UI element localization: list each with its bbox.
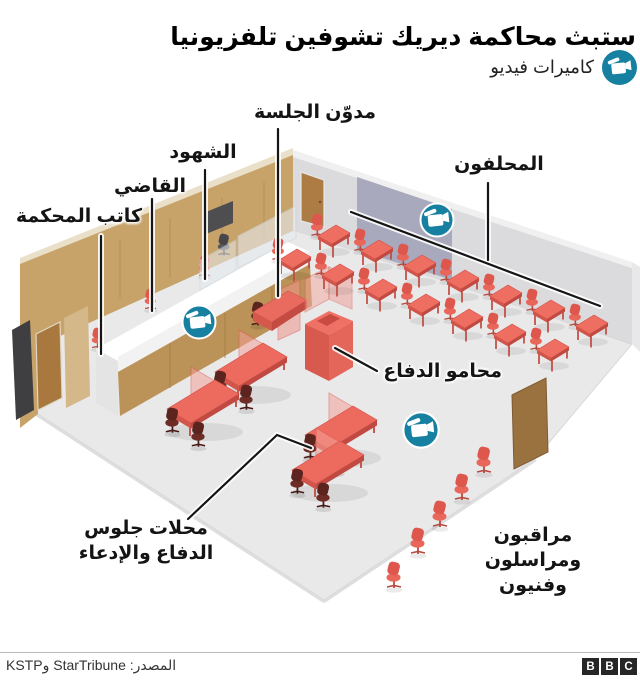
legend: كاميرات فيديو [490,50,637,85]
left-door [36,322,62,410]
bbc-logo-letter: B [582,658,599,675]
video-camera-icon [602,50,637,85]
label-jurors: المحلفون [450,152,548,177]
label-counsel-seating: محلات جلوس الدفاع والإدعاء [76,516,216,566]
video-camera-icon [403,412,438,447]
bbc-logo-letter: B [601,658,618,675]
label-court-reporter: مدوّن الجلسة [218,100,376,125]
label-counsel-seating-line2: الدفاع والإدعاء [76,541,216,566]
video-camera-icon [183,306,216,339]
label-judge: القاضي [118,174,186,199]
label-counsel-seating-line1: محلات جلوس [76,516,216,541]
defense-booth [305,267,353,381]
infographic: ستبث محاكمة ديريك تشوفين تلفزيونيا كامير… [0,0,640,681]
legend-label: كاميرات فيديو [490,57,594,78]
video-camera-icon [421,204,454,237]
label-observers-line2: ومراسلون وفنيون [452,548,614,598]
label-observers-line1: مراقبون [452,523,614,548]
label-court-clerk: كاتب المحكمة [12,204,142,229]
bbc-logo: B B C [582,658,637,675]
bbc-logo-letter: C [620,658,637,675]
page-title: ستبث محاكمة ديريك تشوفين تلفزيونيا [170,22,636,52]
source-text: المصدر: StarTribune وKSTP [6,657,176,674]
label-witnesses: الشهود [164,140,242,165]
footer-divider [0,652,640,653]
label-observers: مراقبون ومراسلون وفنيون [452,523,614,598]
label-defense-lawyers: محامو الدفاع [372,359,502,384]
